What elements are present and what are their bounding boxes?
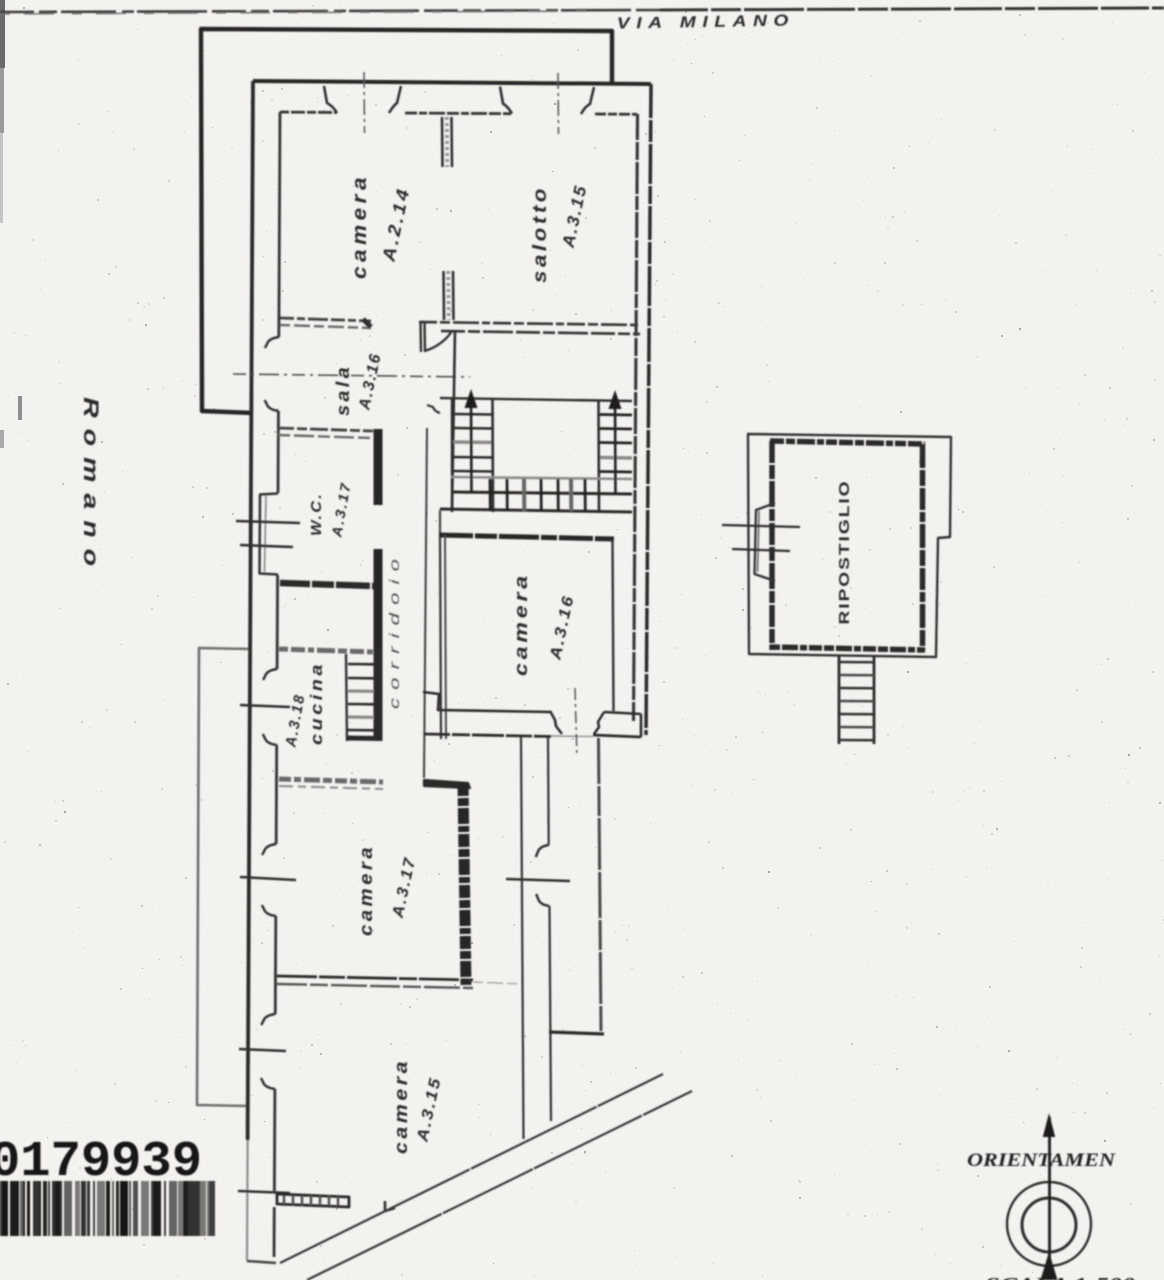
svg-text:Romano: Romano <box>79 397 102 577</box>
svg-text:camera: camera <box>356 844 376 936</box>
svg-text:W.C.: W.C. <box>308 492 325 536</box>
svg-text:sala: sala <box>333 364 353 416</box>
svg-text:salotto: salotto <box>530 185 551 283</box>
svg-text:ORIENTAMEN: ORIENTAMEN <box>967 1150 1116 1171</box>
svg-text:camera: camera <box>391 1058 411 1154</box>
svg-text:VIA MILANO: VIA MILANO <box>617 12 795 32</box>
svg-text:corridoio: corridoio <box>387 551 402 709</box>
svg-text:camera: camera <box>349 173 371 279</box>
svg-text:camera: camera <box>511 572 531 676</box>
svg-text:cucina: cucina <box>307 661 326 745</box>
svg-text:RIPOSTIGLIO: RIPOSTIGLIO <box>837 480 853 625</box>
svg-text:SCALA 1:500: SCALA 1:500 <box>985 1274 1135 1280</box>
